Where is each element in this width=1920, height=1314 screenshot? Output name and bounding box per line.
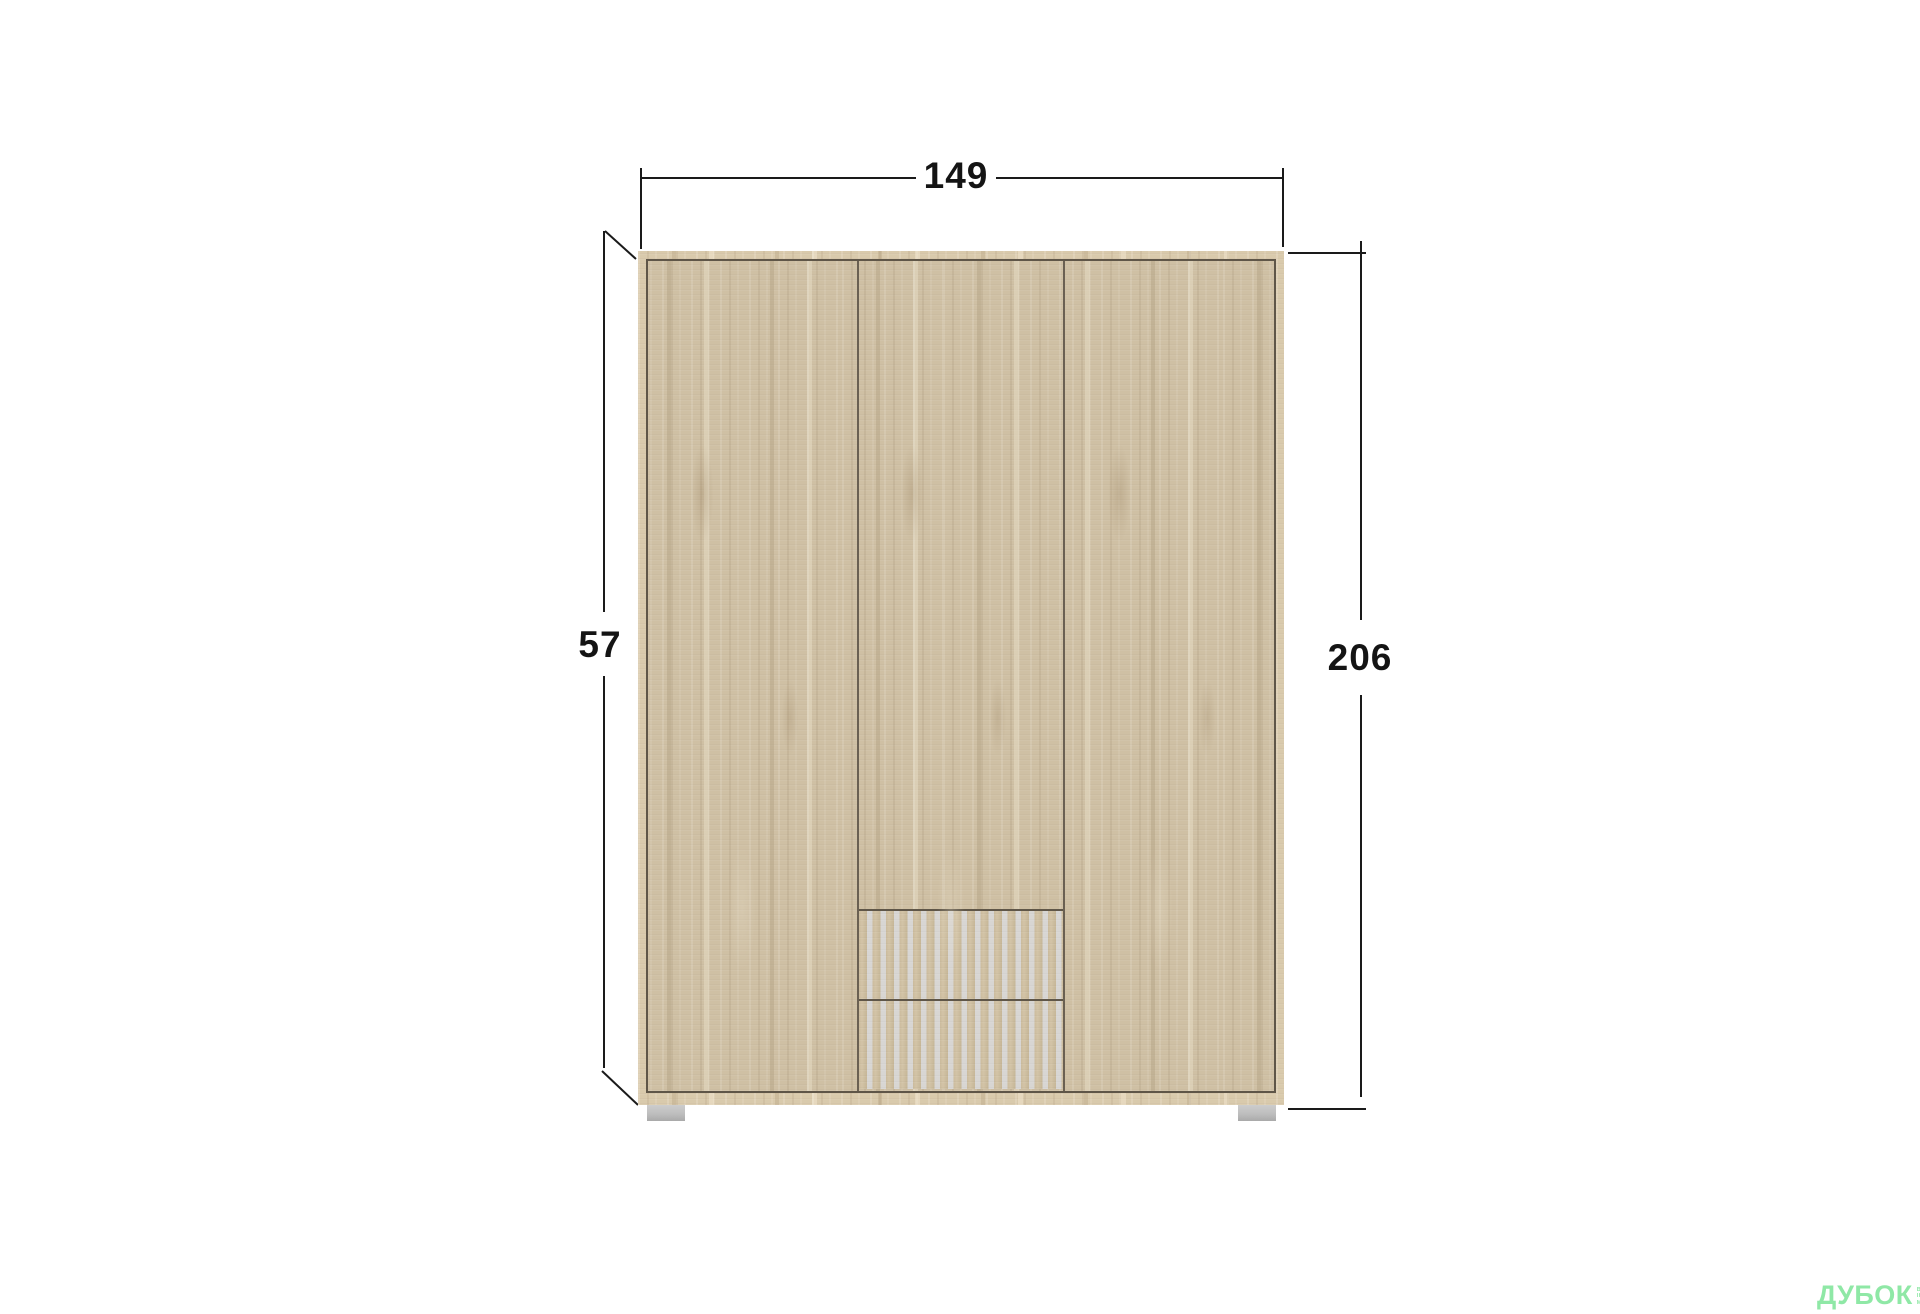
depth-diagonal-top <box>605 231 636 259</box>
dimension-width-label: 149 <box>924 155 989 197</box>
wardrobe-body <box>638 251 1284 1105</box>
wardrobe-foot-left <box>647 1105 685 1121</box>
dimension-depth-label: 57 <box>578 624 621 666</box>
watermark-brand: ДУБОК <box>1817 1284 1913 1306</box>
drawer-upper <box>859 911 1063 1001</box>
wardrobe-door-left <box>648 261 857 1091</box>
depth-diagonal-bottom <box>602 1071 638 1105</box>
drawer-lower <box>859 1001 1063 1089</box>
wardrobe-front-frame <box>646 259 1276 1093</box>
wardrobe-door-right <box>1065 261 1274 1091</box>
dimension-height-label: 206 <box>1328 637 1393 679</box>
wardrobe-doors <box>648 261 1274 1091</box>
product-diagram: 149 206 57 ДУБОК ВАШІ <box>0 0 1920 1314</box>
drawer-stack <box>859 909 1063 1091</box>
wardrobe-door-middle <box>859 261 1063 1091</box>
watermark: ДУБОК ВАШІ ІНТЕРНЕТ МЕБЛІ <box>1817 1284 1920 1306</box>
wardrobe-foot-right <box>1238 1105 1276 1121</box>
